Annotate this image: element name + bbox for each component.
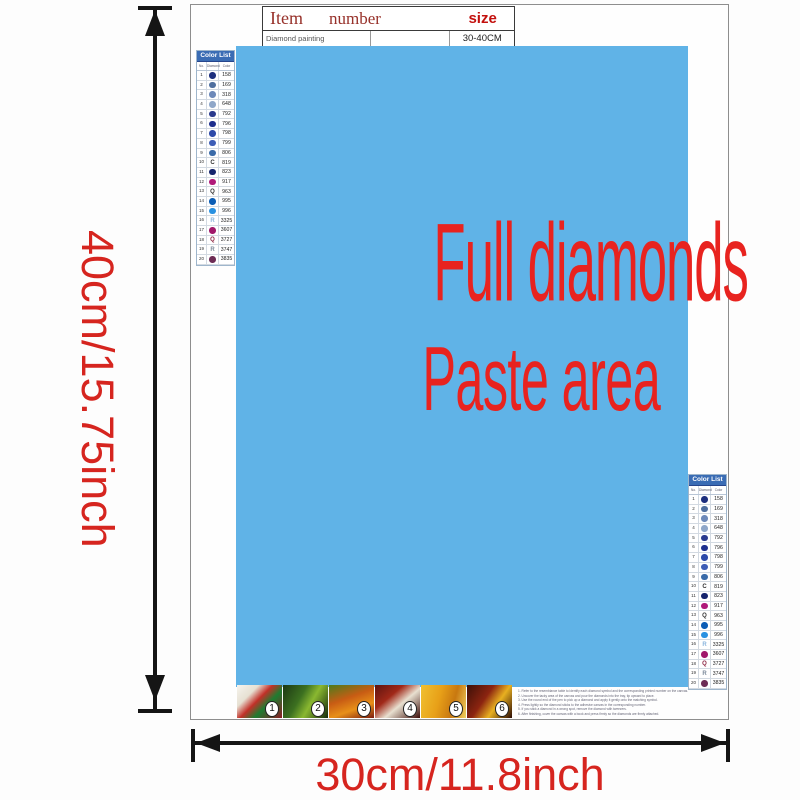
step-number-badge: 2 (311, 701, 325, 717)
color-list-right: Color ListNo.DiamondColor115821693318464… (688, 474, 727, 690)
dmc-color-code: 318 (219, 92, 234, 98)
cell-item-name: Diamond painting (263, 31, 370, 46)
step-number-badge: 5 (449, 701, 463, 717)
row-number: 5 (197, 110, 207, 119)
step-thumbnail: 3 (329, 685, 374, 718)
row-number: 9 (689, 573, 699, 582)
item-table-row: Diamond painting 30-40CM (263, 31, 514, 46)
color-list-row: 16R3325 (689, 640, 726, 650)
diamond-symbol-icon (207, 129, 219, 138)
color-list-row: 7798 (689, 553, 726, 563)
diamond-symbol-icon (699, 514, 711, 523)
step-number-badge: 4 (403, 701, 417, 717)
row-number: 16 (197, 216, 207, 225)
row-number: 18 (197, 236, 207, 245)
color-list-row: 4648 (197, 100, 234, 110)
row-number: 19 (689, 669, 699, 678)
color-list-title: Color List (689, 475, 726, 486)
dmc-color-code: 823 (711, 593, 726, 599)
arrow-line (194, 741, 727, 745)
diamond-symbol-icon: Q (207, 236, 219, 245)
dmc-color-code: 3727 (711, 661, 726, 667)
instruction-line: 1. Refer to the resemblance table to ide… (518, 689, 703, 694)
item-table-header: Item number size (263, 7, 514, 31)
diamond-symbol-icon (207, 207, 219, 216)
diamond-symbol-icon (699, 650, 711, 659)
row-number: 20 (689, 679, 699, 688)
color-list-row: 18Q3727 (689, 660, 726, 670)
diamond-symbol-icon (207, 168, 219, 177)
diamond-symbol-icon (699, 563, 711, 572)
paste-area-title-line1: Full diamonds (433, 201, 747, 328)
diamond-symbol-icon (207, 197, 219, 206)
color-list-row: 6796 (689, 543, 726, 553)
diamond-symbol-icon (207, 139, 219, 148)
row-number: 8 (689, 563, 699, 572)
step-thumbnail: 1 (237, 685, 282, 718)
horizontal-dimension-label: 30cm/11.8inch (190, 749, 730, 800)
row-number: 17 (197, 226, 207, 235)
dmc-color-code: 169 (711, 506, 726, 512)
dmc-color-code: 158 (711, 496, 726, 502)
color-list-left: Color ListNo.DiamondColor115821693318464… (196, 50, 235, 266)
row-number: 19 (197, 245, 207, 254)
instruction-line: 6. After finishing, cover the canvas wit… (518, 712, 703, 717)
dmc-color-code: 995 (219, 198, 234, 204)
dmc-color-code: 648 (219, 101, 234, 107)
dmc-color-code: 158 (219, 72, 234, 78)
diamond-symbol-icon (699, 553, 711, 562)
diamond-symbol-icon (699, 573, 711, 582)
color-list-row: 14995 (197, 197, 234, 207)
color-list-row: 7798 (197, 129, 234, 139)
row-number: 7 (689, 553, 699, 562)
column-header: Color (711, 486, 726, 494)
diamond-symbol-icon (699, 592, 711, 601)
paste-area: Full diamonds Paste area (236, 46, 688, 687)
dmc-color-code: 796 (219, 121, 234, 127)
arrow-up-icon (145, 10, 165, 36)
diamond-symbol-icon (207, 178, 219, 187)
dmc-color-code: 3325 (711, 642, 726, 648)
diamond-symbol-icon (699, 524, 711, 533)
dmc-color-code: 3835 (711, 680, 726, 686)
color-list-row: 3318 (689, 514, 726, 524)
color-list-row: 19R3747 (197, 245, 234, 255)
diamond-symbol-icon (699, 543, 711, 552)
dmc-color-code: 996 (219, 208, 234, 214)
diamond-symbol-icon (699, 602, 711, 611)
dmc-color-code: 3607 (219, 227, 234, 233)
diamond-symbol-icon (699, 621, 711, 630)
color-list-row: 5792 (689, 534, 726, 544)
column-header: No. (689, 486, 699, 494)
row-number: 11 (197, 168, 207, 177)
diamond-symbol-icon (207, 110, 219, 119)
row-number: 13 (689, 611, 699, 620)
diamond-symbol-icon (699, 495, 711, 504)
color-list-row: 2169 (197, 81, 234, 91)
color-list-row: 3318 (197, 90, 234, 100)
column-header: No. (197, 62, 207, 70)
row-number: 18 (689, 660, 699, 669)
color-list-row: 8799 (197, 139, 234, 149)
dmc-color-code: 3607 (711, 651, 726, 657)
color-list-row: 19R3747 (689, 669, 726, 679)
header-size: size (451, 10, 514, 27)
diamond-symbol-icon: R (207, 245, 219, 254)
dmc-color-code: 917 (711, 603, 726, 609)
diamond-symbol-icon: R (699, 669, 711, 678)
dmc-color-code: 318 (711, 516, 726, 522)
dmc-color-code: 796 (711, 545, 726, 551)
color-list-row: 173607 (197, 226, 234, 236)
color-list-row: 14995 (689, 621, 726, 631)
color-list-row: 11823 (689, 592, 726, 602)
step-thumbnail: 4 (375, 685, 420, 718)
row-number: 10 (197, 158, 207, 167)
diamond-symbol-icon (207, 81, 219, 90)
row-number: 12 (197, 178, 207, 187)
color-list-row: 2169 (689, 505, 726, 515)
dmc-color-code: 963 (219, 189, 234, 195)
diamond-symbol-icon (699, 679, 711, 688)
header-number: number (329, 9, 381, 29)
step-thumbnail: 6 (467, 685, 512, 718)
cell-item-number (370, 31, 449, 46)
color-list-row: 8799 (689, 563, 726, 573)
item-table: Item number size Diamond painting 30-40C… (262, 6, 515, 47)
step-number-badge: 1 (265, 701, 279, 717)
column-header: Color (219, 62, 234, 70)
product-image: 40cm/15.75inch Item number size Diamond … (0, 0, 800, 800)
color-list-title: Color List (197, 51, 234, 62)
diamond-symbol-icon: R (207, 216, 219, 225)
color-list-row: 1158 (197, 71, 234, 81)
row-number: 6 (689, 543, 699, 552)
diamond-symbol-icon: Q (699, 660, 711, 669)
dmc-color-code: 3325 (219, 218, 234, 224)
color-list-row: 203835 (197, 255, 234, 265)
row-number: 3 (197, 90, 207, 99)
color-list-row: 13Q963 (689, 611, 726, 621)
color-list-row: 1158 (689, 495, 726, 505)
row-number: 7 (197, 129, 207, 138)
row-number: 1 (197, 71, 207, 80)
row-number: 13 (197, 187, 207, 196)
row-number: 8 (197, 139, 207, 148)
column-header: Diamond (699, 486, 711, 494)
arrow-end-cap (138, 709, 172, 713)
diamond-symbol-icon (699, 534, 711, 543)
row-number: 14 (197, 197, 207, 206)
dmc-color-code: 798 (219, 130, 234, 136)
paste-area-title-line2: Paste area (422, 327, 660, 432)
arrow-down-icon (145, 675, 165, 701)
instruction-text: 1. Refer to the resemblance table to ide… (518, 689, 703, 717)
color-list-row: 15996 (197, 207, 234, 217)
dmc-color-code: 798 (711, 554, 726, 560)
dmc-color-code: 648 (711, 525, 726, 531)
color-list-row: 173607 (689, 650, 726, 660)
dmc-color-code: 169 (219, 82, 234, 88)
row-number: 17 (689, 650, 699, 659)
color-list-row: 9806 (689, 573, 726, 583)
dmc-color-code: 806 (711, 574, 726, 580)
color-list-row: 12917 (197, 178, 234, 188)
diamond-symbol-icon (207, 100, 219, 109)
color-list-row: 10C819 (689, 582, 726, 592)
diamond-symbol-icon: Q (699, 611, 711, 620)
color-list-row: 203835 (689, 679, 726, 689)
dmc-color-code: 995 (711, 622, 726, 628)
cell-item-size: 30-40CM (449, 31, 514, 46)
diamond-symbol-icon (207, 226, 219, 235)
row-number: 20 (197, 255, 207, 264)
row-number: 12 (689, 602, 699, 611)
color-list-row: 15996 (689, 631, 726, 641)
step-number-badge: 3 (357, 701, 371, 717)
step-thumbnail: 5 (421, 685, 466, 718)
color-list-row: 9806 (197, 149, 234, 159)
diamond-symbol-icon (699, 631, 711, 640)
row-number: 11 (689, 592, 699, 601)
color-list-row: 18Q3727 (197, 236, 234, 246)
diamond-symbol-icon: R (699, 640, 711, 649)
column-header: Diamond (207, 62, 219, 70)
row-number: 16 (689, 640, 699, 649)
row-number: 2 (689, 505, 699, 514)
diamond-symbol-icon (699, 505, 711, 514)
step-thumbnails: 123456 (237, 685, 512, 718)
dmc-color-code: 799 (711, 564, 726, 570)
row-number: 5 (689, 534, 699, 543)
header-item: Item (263, 8, 303, 29)
dmc-color-code: 917 (219, 179, 234, 185)
row-number: 4 (689, 524, 699, 533)
dmc-color-code: 792 (219, 111, 234, 117)
row-number: 6 (197, 119, 207, 128)
dmc-color-code: 3727 (219, 237, 234, 243)
dmc-color-code: 963 (711, 613, 726, 619)
diamond-symbol-icon (207, 149, 219, 158)
color-list-row: 11823 (197, 168, 234, 178)
dmc-color-code: 996 (711, 632, 726, 638)
diamond-symbol-icon: C (207, 158, 219, 167)
color-list-columns: No.DiamondColor (689, 486, 726, 495)
color-list-row: 6796 (197, 119, 234, 129)
step-thumbnail: 2 (283, 685, 328, 718)
row-number: 10 (689, 582, 699, 591)
canvas-sheet: Item number size Diamond painting 30-40C… (190, 4, 729, 720)
vertical-dimension-label: 40cm/15.75inch (71, 230, 123, 548)
diamond-symbol-icon (207, 119, 219, 128)
color-list-row: 5792 (197, 110, 234, 120)
dmc-color-code: 819 (219, 160, 234, 166)
color-list-row: 13Q963 (197, 187, 234, 197)
dmc-color-code: 792 (711, 535, 726, 541)
arrow-line (153, 8, 157, 711)
row-number: 1 (689, 495, 699, 504)
color-list-row: 4648 (689, 524, 726, 534)
color-list-row: 16R3325 (197, 216, 234, 226)
color-list-columns: No.DiamondColor (197, 62, 234, 71)
row-number: 9 (197, 149, 207, 158)
row-number: 2 (197, 81, 207, 90)
color-list-row: 10C819 (197, 158, 234, 168)
color-list-row: 12917 (689, 602, 726, 612)
row-number: 15 (689, 631, 699, 640)
diamond-symbol-icon (207, 71, 219, 80)
row-number: 4 (197, 100, 207, 109)
row-number: 15 (197, 207, 207, 216)
diamond-symbol-icon: C (699, 582, 711, 591)
dmc-color-code: 806 (219, 150, 234, 156)
dmc-color-code: 823 (219, 169, 234, 175)
dmc-color-code: 3747 (219, 247, 234, 253)
dmc-color-code: 3835 (219, 256, 234, 262)
dmc-color-code: 799 (219, 140, 234, 146)
row-number: 3 (689, 514, 699, 523)
row-number: 14 (689, 621, 699, 630)
dmc-color-code: 3747 (711, 671, 726, 677)
diamond-symbol-icon (207, 90, 219, 99)
diamond-symbol-icon: Q (207, 187, 219, 196)
dmc-color-code: 819 (711, 584, 726, 590)
step-number-badge: 6 (495, 701, 509, 717)
diamond-symbol-icon (207, 255, 219, 264)
